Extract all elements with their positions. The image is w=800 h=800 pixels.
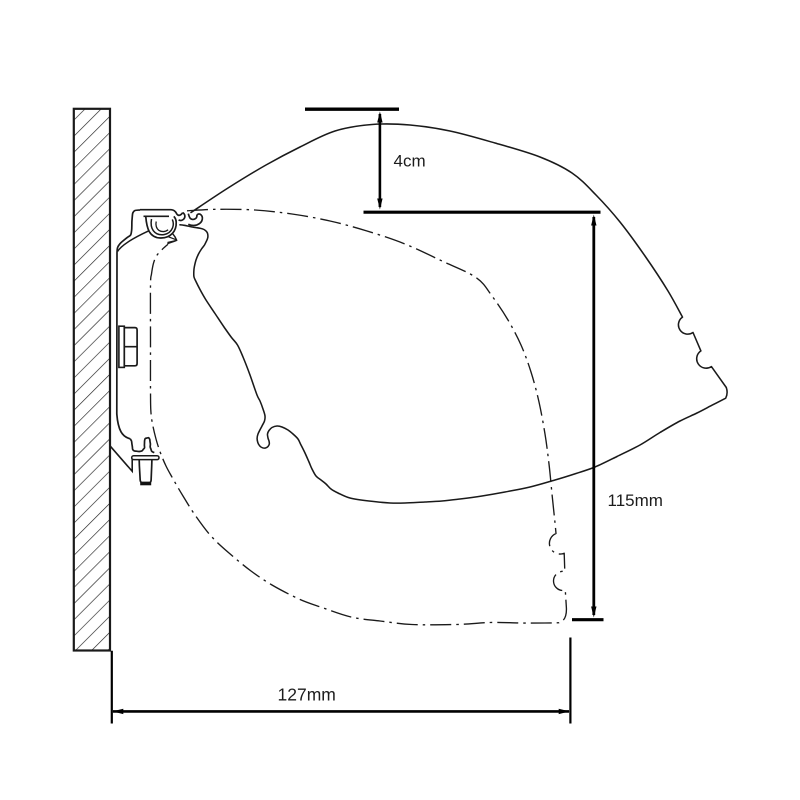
svg-text:115mm: 115mm: [608, 491, 663, 510]
svg-text:4cm: 4cm: [394, 152, 426, 171]
svg-text:127mm: 127mm: [278, 685, 336, 705]
